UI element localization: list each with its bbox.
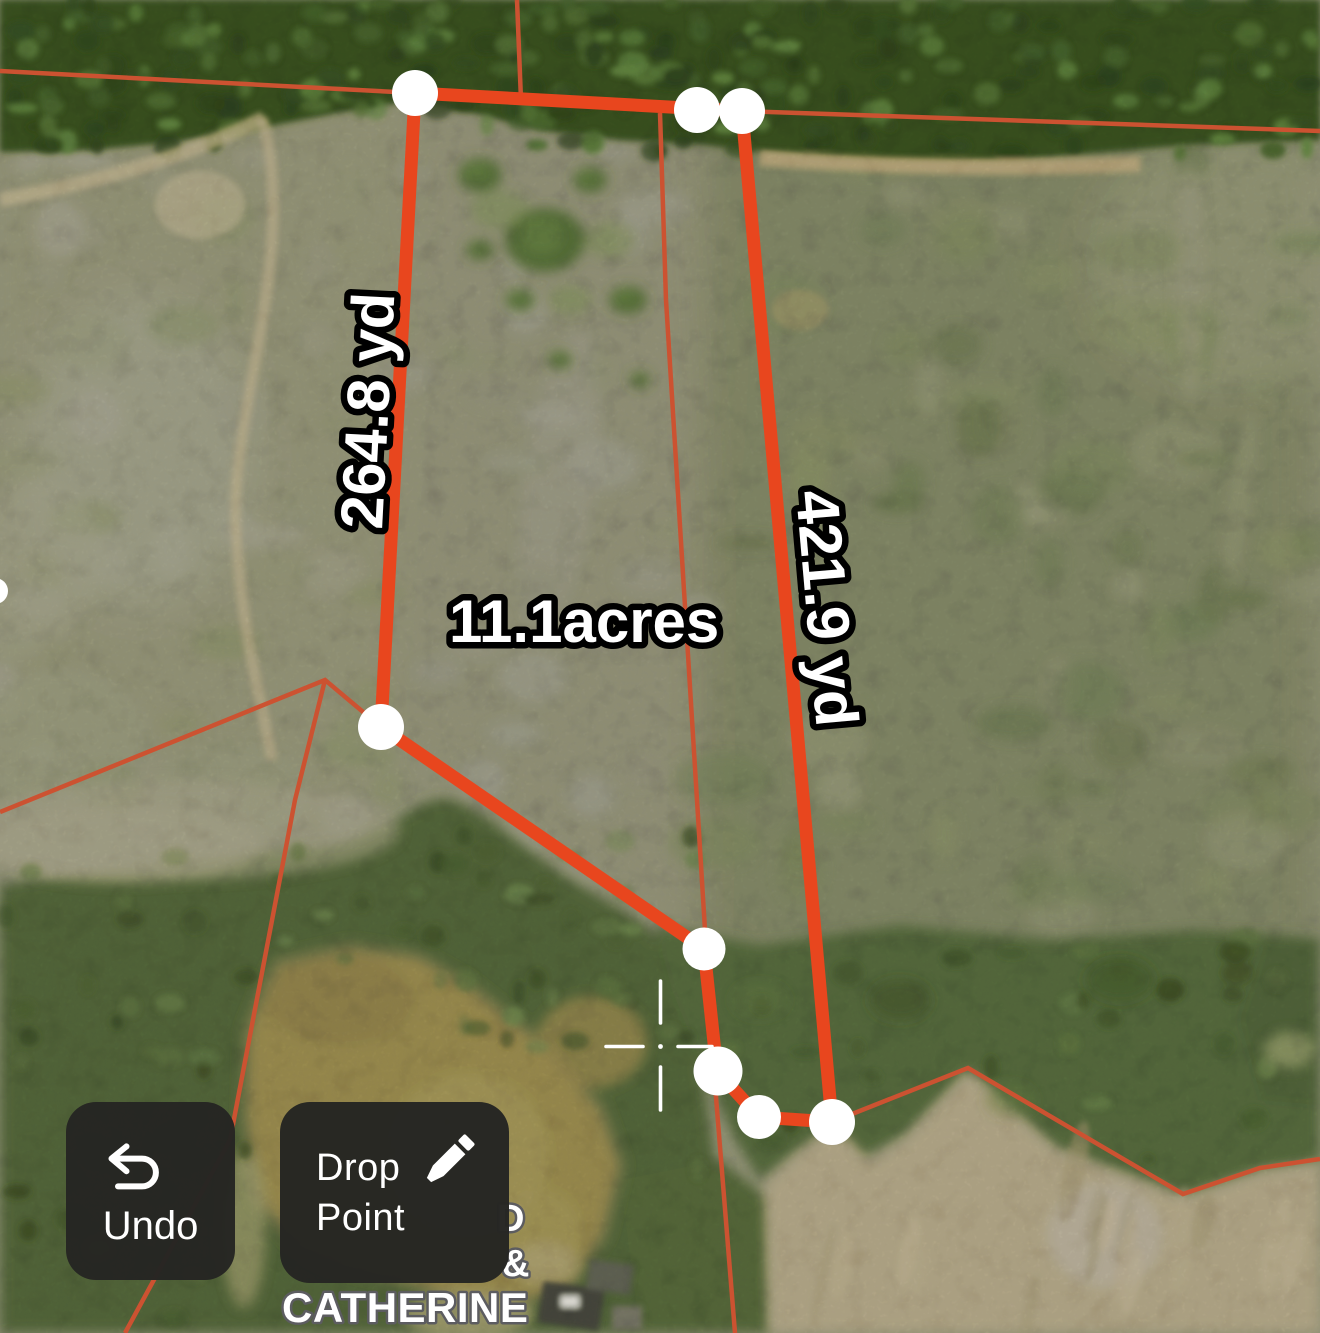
svg-text:CATHERINE: CATHERINE: [282, 1284, 528, 1331]
svg-text:264.8 yd: 264.8 yd: [328, 291, 407, 531]
svg-text:11.1acres: 11.1acres: [449, 588, 719, 655]
